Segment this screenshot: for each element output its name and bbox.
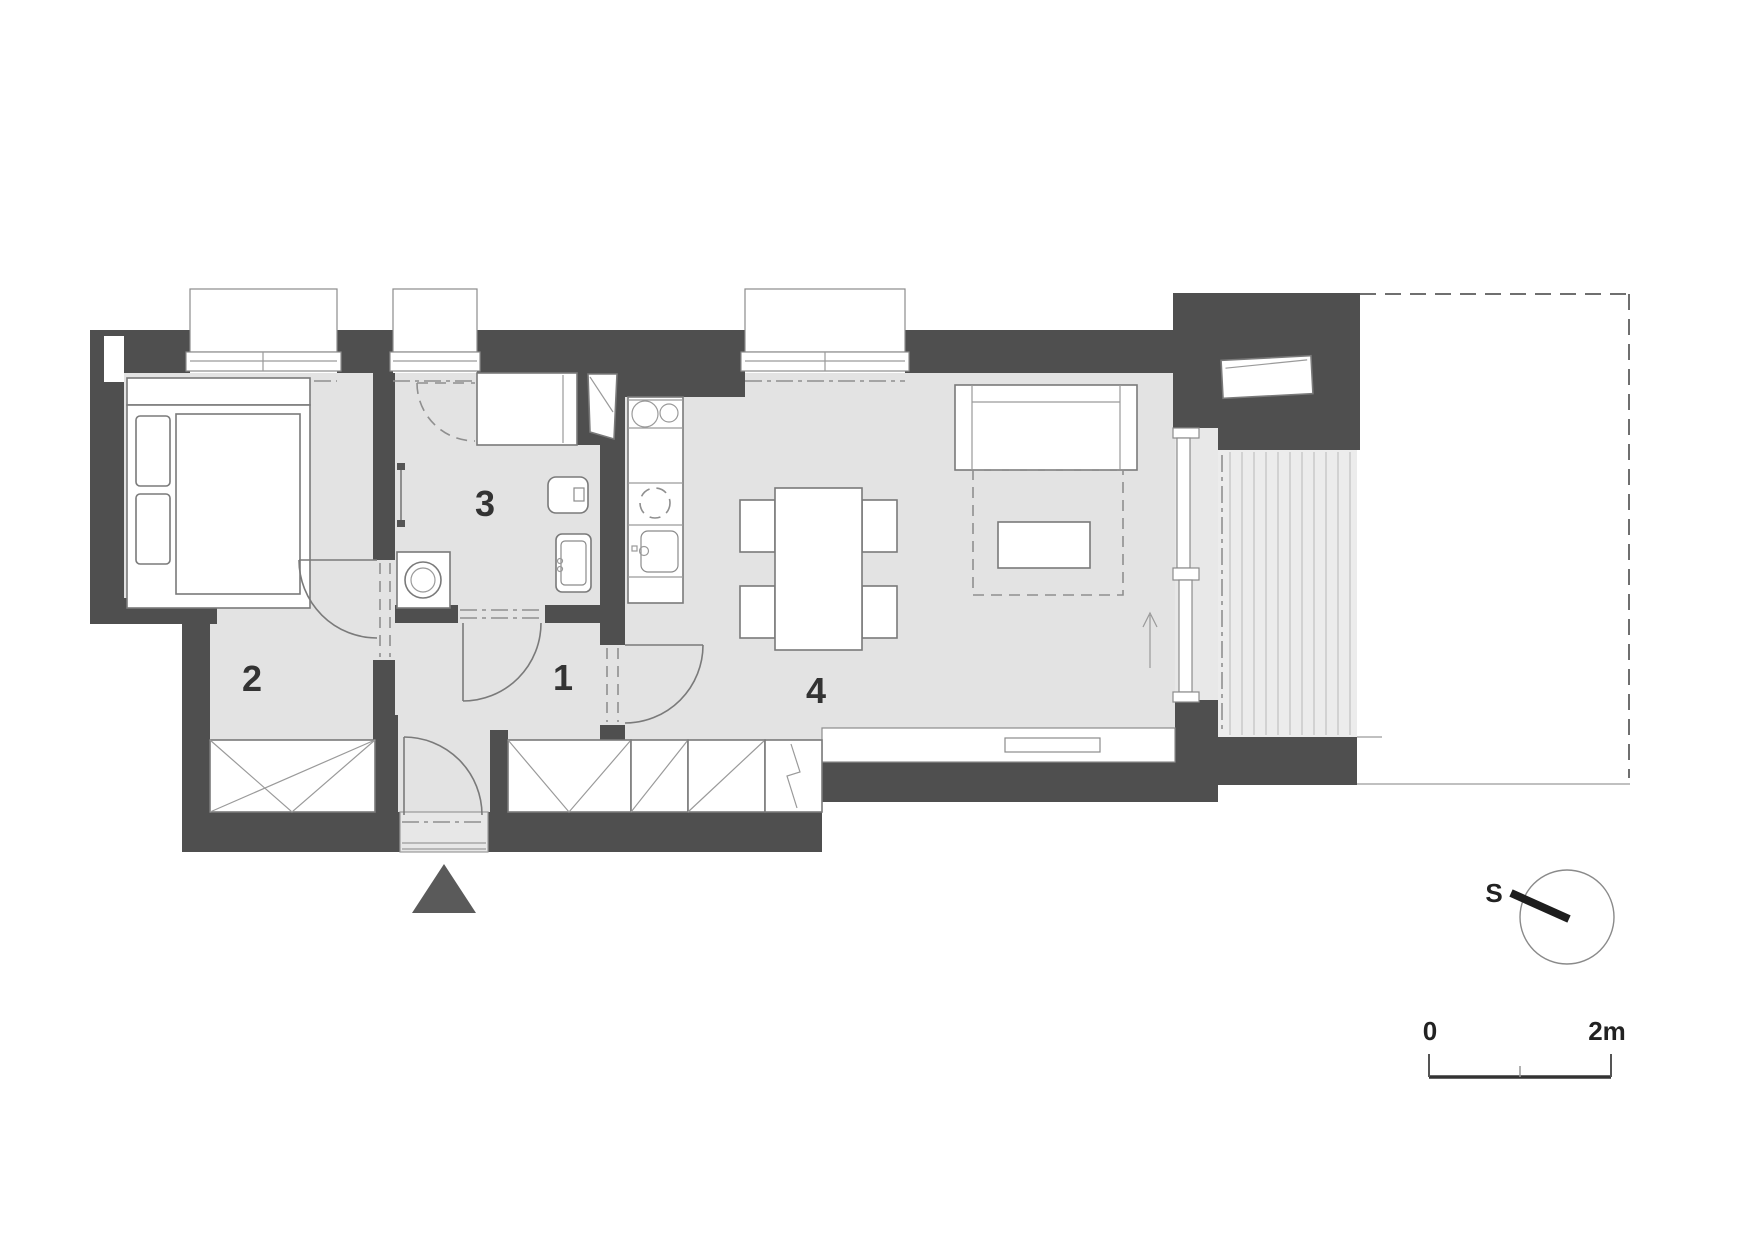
hallway-wardrobes: [508, 740, 822, 812]
bed-mattress: [176, 414, 300, 594]
compass: S: [1485, 870, 1614, 964]
bathroom-label: 3: [475, 483, 495, 524]
floor-plan-page: 2 3 1 4 S 0 2m: [0, 0, 1754, 1241]
bathroom-window: [390, 289, 480, 371]
bathroom-sink: [556, 534, 591, 592]
toilet: [548, 477, 588, 513]
entrance-right-pier: [490, 730, 508, 814]
scale-start-label: 0: [1423, 1016, 1437, 1046]
floor-plan-drawing: 2 3 1 4 S 0 2m: [0, 0, 1754, 1241]
hallway-label: 1: [553, 657, 573, 698]
coffee-table: [998, 522, 1090, 568]
wall-pier: [1173, 293, 1225, 428]
kitchen-counter: [628, 397, 683, 603]
bathtub: [477, 373, 577, 445]
living-room-label: 4: [806, 670, 826, 711]
balcony-door-south-pier: [1175, 700, 1218, 763]
chair: [862, 500, 897, 552]
bed-pillow: [136, 494, 170, 564]
scale-bar: 0 2m: [1423, 1016, 1626, 1077]
entrance-left-pier: [375, 715, 398, 814]
balcony-bottom-wall: [1218, 737, 1357, 785]
bedroom-window: [186, 289, 341, 371]
bedroom-label: 2: [242, 658, 262, 699]
scale-end-label: 2m: [1588, 1016, 1626, 1046]
washing-machine: [397, 552, 450, 608]
compass-south-label: S: [1485, 878, 1502, 908]
bathroom-door-opening: [458, 605, 545, 623]
wall-over-kitchen: [618, 373, 745, 397]
living-room-window: [741, 289, 909, 371]
balcony-deck: [1218, 450, 1357, 737]
bed: [127, 378, 310, 608]
tall-cabinet: [588, 374, 617, 439]
wall-niche: [104, 336, 124, 382]
south-glazing: [822, 728, 1175, 762]
entrance-arrow: [412, 864, 476, 913]
chair: [740, 586, 775, 638]
chair: [740, 500, 775, 552]
bedroom-door-opening: [373, 560, 395, 660]
living-window-sill: [822, 728, 1175, 762]
terrace-boundary: [1357, 294, 1630, 784]
sofa: [955, 385, 1137, 470]
dining-table: [775, 488, 862, 650]
radiator: [1005, 738, 1100, 752]
bed-headboard: [127, 378, 310, 405]
bottom-wall-living: [822, 762, 1218, 802]
bedroom-wardrobe: [210, 740, 375, 812]
chair: [862, 586, 897, 638]
bed-pillow: [136, 416, 170, 486]
planter-box: [1221, 356, 1313, 399]
